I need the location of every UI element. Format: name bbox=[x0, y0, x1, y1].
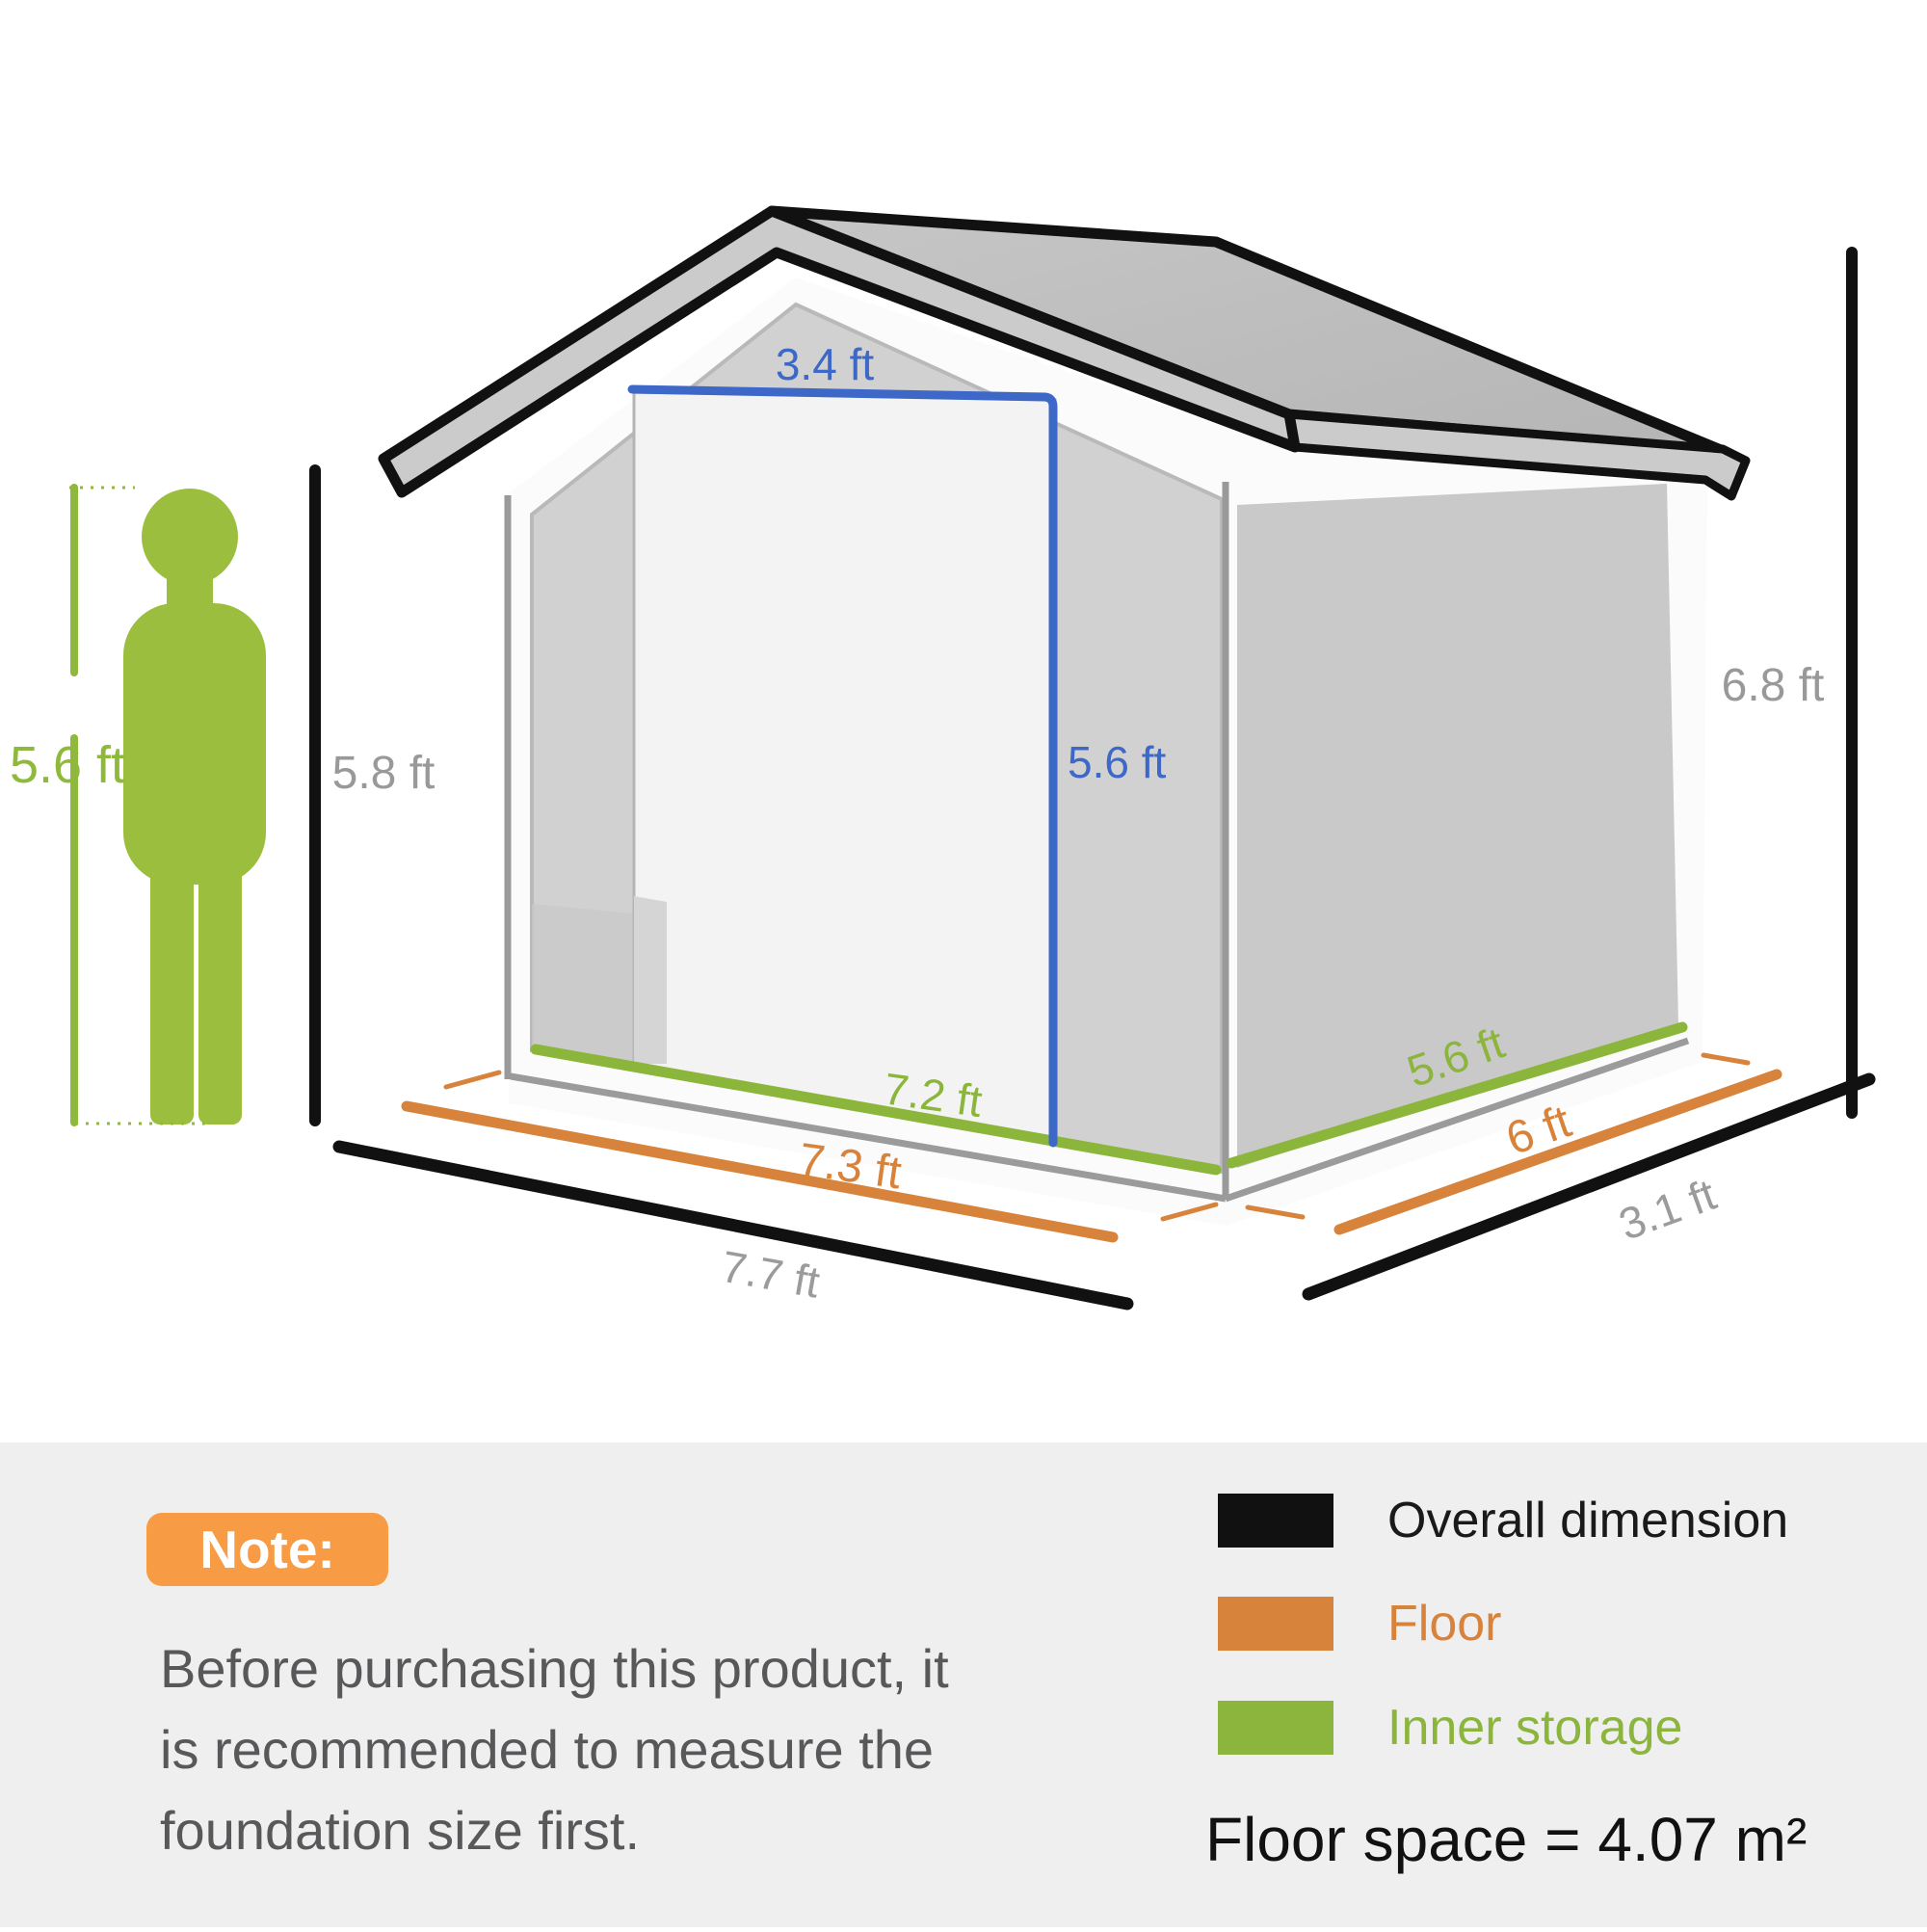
person-figure bbox=[123, 489, 266, 1125]
overall-depth-label: 3.1 ft bbox=[1613, 1169, 1723, 1250]
floor-tick-rear bbox=[1703, 1055, 1748, 1063]
note-text: Before purchasing this product, it is re… bbox=[160, 1628, 949, 1871]
door-height-label: 5.6 ft bbox=[1068, 737, 1167, 787]
floor-tick-left bbox=[446, 1072, 499, 1087]
person-right-leg bbox=[198, 858, 242, 1125]
door-width-label: 3.4 ft bbox=[776, 339, 875, 389]
door-jamb-shadow bbox=[634, 896, 667, 1064]
note-badge: Note: bbox=[146, 1513, 388, 1586]
legend-item-inner-storage: Inner storage bbox=[1218, 1701, 1682, 1755]
note-line: foundation size first. bbox=[160, 1790, 949, 1871]
note-line: Before purchasing this product, it bbox=[160, 1628, 949, 1709]
floor-space-text: Floor space = 4.07 m² bbox=[1205, 1804, 1807, 1875]
door-opening bbox=[634, 392, 1055, 1145]
overall-width-label: 7.7 ft bbox=[718, 1241, 824, 1308]
legend-item-overall: Overall dimension bbox=[1218, 1494, 1788, 1548]
person-torso bbox=[123, 603, 266, 885]
legend-swatch-overall bbox=[1218, 1494, 1333, 1548]
legend-item-floor: Floor bbox=[1218, 1597, 1501, 1651]
person-height-label: 5.6 ft bbox=[10, 736, 125, 794]
legend-label-floor: Floor bbox=[1387, 1595, 1501, 1653]
front-wall-shading bbox=[532, 904, 634, 1066]
note-line: is recommended to measure the bbox=[160, 1709, 949, 1790]
legend-label-overall: Overall dimension bbox=[1387, 1492, 1788, 1549]
note-title: Note: bbox=[199, 1519, 335, 1580]
legend-swatch-inner-storage bbox=[1218, 1701, 1333, 1755]
person-left-leg bbox=[150, 858, 194, 1125]
legend-label-inner-storage: Inner storage bbox=[1387, 1699, 1682, 1757]
legend-swatch-floor bbox=[1218, 1597, 1333, 1651]
overall-height-label: 6.8 ft bbox=[1722, 660, 1825, 711]
wall-height-label: 5.8 ft bbox=[332, 748, 436, 799]
